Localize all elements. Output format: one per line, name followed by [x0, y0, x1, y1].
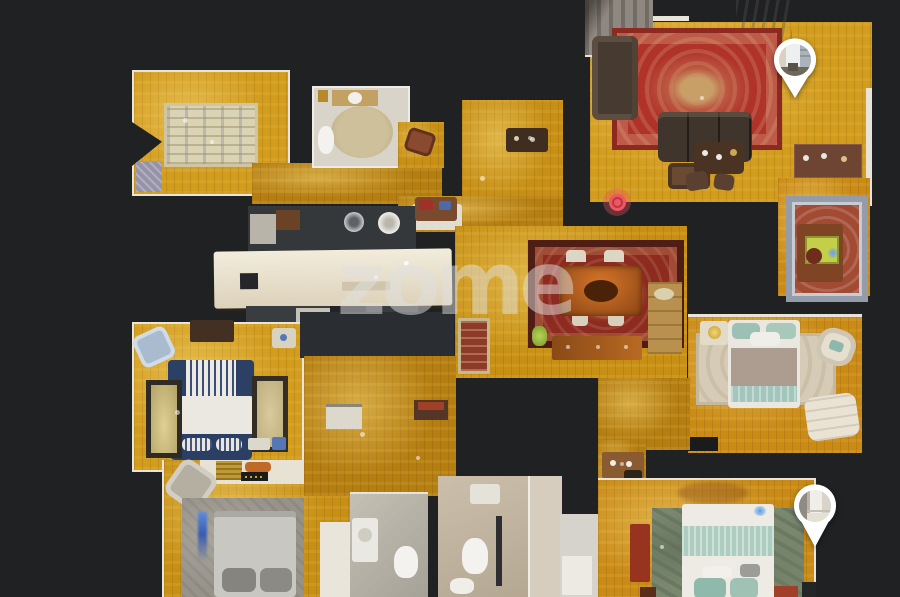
floor-reflection [183, 118, 188, 123]
top-bathroom-floor[interactable] [314, 88, 408, 166]
teal-blanket-band [682, 526, 774, 556]
bottom-right-bedroom-floor[interactable] [598, 478, 816, 597]
current-position-dot[interactable] [603, 188, 631, 216]
entry-side-floor[interactable] [398, 122, 444, 168]
floor-reflection [700, 96, 704, 100]
bathroom-a-floor[interactable] [350, 492, 428, 597]
bath-shelf-item [318, 90, 328, 102]
sideboard-item [841, 156, 847, 162]
table-dish [730, 149, 737, 156]
toilet [394, 546, 418, 578]
bench-pillow-blue [439, 201, 451, 210]
console-red-top [418, 402, 444, 410]
blue-glint [754, 506, 766, 516]
hall-console [506, 128, 548, 152]
dark-item [802, 582, 816, 597]
dollhouse-floorplan-view[interactable]: zome [0, 0, 900, 597]
knob [624, 345, 628, 349]
black-sign [241, 472, 268, 481]
hall-bench [415, 197, 457, 221]
study-nook-floor[interactable] [778, 178, 870, 296]
light-panel [250, 214, 276, 244]
striped-pillow [216, 438, 242, 451]
pin-photo-doorway-preview [799, 490, 831, 522]
knob [596, 345, 600, 349]
armchair-teal-pillow [828, 339, 845, 353]
oval-mirror [654, 288, 674, 300]
pillow-white [750, 332, 780, 346]
white-bowl [378, 212, 400, 234]
console-item [514, 136, 519, 141]
bathroom-b-floor[interactable] [438, 476, 560, 597]
partition-dark [496, 516, 502, 586]
shower-area [528, 476, 562, 597]
stair-mat [136, 162, 162, 192]
sideboard-item [803, 155, 809, 161]
teal-pillow [730, 578, 758, 597]
pillow-dark-gray [222, 568, 256, 592]
red-side-table [774, 586, 798, 597]
blue-item [280, 334, 287, 341]
wall-notch [132, 122, 162, 166]
gold-runner [216, 461, 242, 480]
table-centerpiece [584, 280, 618, 302]
knob [566, 345, 570, 349]
vanity [352, 518, 378, 562]
floor-reflection [660, 545, 664, 549]
toilet [318, 126, 334, 154]
bidet [450, 578, 474, 594]
teal-pillow [694, 578, 726, 597]
lamp-glow [708, 326, 721, 339]
sideboard [794, 144, 862, 178]
floor-reflection [416, 456, 420, 460]
white-roll-pillow [702, 566, 732, 578]
wall-cabinet [648, 282, 682, 354]
side-chair [403, 126, 437, 157]
hall-cabinet-white [326, 404, 362, 429]
floor-reflection [175, 410, 180, 415]
dark-stool [640, 587, 656, 597]
desk-item [626, 461, 632, 467]
dining-sideboard [552, 336, 642, 360]
hall-console-red [414, 400, 448, 420]
pano-pin-living-room[interactable] [772, 37, 818, 99]
sink-basin [348, 92, 362, 104]
orange-cushion [245, 462, 271, 472]
gray-bed [214, 511, 296, 597]
bench-cushion-red [419, 200, 433, 210]
blue-box [272, 437, 286, 450]
striped-pillow [182, 438, 212, 451]
pillow-dark-gray [260, 568, 292, 592]
floor-reflection [480, 176, 485, 181]
cutting-board [276, 210, 300, 230]
vanity [562, 556, 592, 595]
duvet-taupe [731, 348, 797, 388]
master-bed [728, 320, 800, 408]
sink [470, 484, 500, 504]
glass-panel [146, 380, 182, 458]
white-tray [248, 438, 270, 450]
island-notch [240, 273, 258, 289]
side-table-white [272, 328, 296, 348]
gray-pillow [740, 564, 760, 577]
dining-chair-cream [604, 250, 624, 262]
sideboard-item [821, 153, 827, 159]
throw-teal [731, 386, 797, 402]
leather-sofa-vertical [592, 36, 638, 120]
basin [358, 528, 372, 542]
floor-reflection [360, 432, 365, 437]
floor-reflection [620, 462, 624, 466]
striped-sheet [186, 360, 236, 398]
blue-glint [828, 248, 838, 258]
teal-bed [682, 504, 774, 597]
chaise-lounge [803, 392, 861, 443]
lower-hallway-floor[interactable] [304, 356, 456, 496]
red-bench [630, 524, 650, 582]
position-dot-disc [609, 194, 626, 211]
floor-reflection [210, 140, 214, 144]
nightstand-lamp [700, 321, 728, 345]
dining-chair-cream [572, 316, 588, 326]
floor-stain [678, 482, 748, 504]
pin-photo-room-preview [779, 44, 811, 76]
round-bath-rug [331, 106, 393, 158]
blue-light-strip [198, 512, 207, 562]
dining-chair-cream [608, 316, 624, 326]
position-dot-ring [612, 197, 623, 208]
breakfast-table [694, 142, 744, 174]
desk-item [610, 460, 616, 466]
table-cup [716, 154, 722, 160]
floor-reflection [528, 136, 532, 140]
steel-pot [344, 212, 364, 232]
toilet [462, 538, 488, 574]
desk-chair [806, 248, 822, 264]
pano-pin-bedroom[interactable] [792, 483, 838, 548]
watermark: zome [337, 240, 573, 328]
dining-chair [713, 173, 735, 192]
dresser-dark [190, 320, 234, 342]
patterned-cream-rug [164, 103, 258, 167]
table-cup [702, 150, 708, 156]
